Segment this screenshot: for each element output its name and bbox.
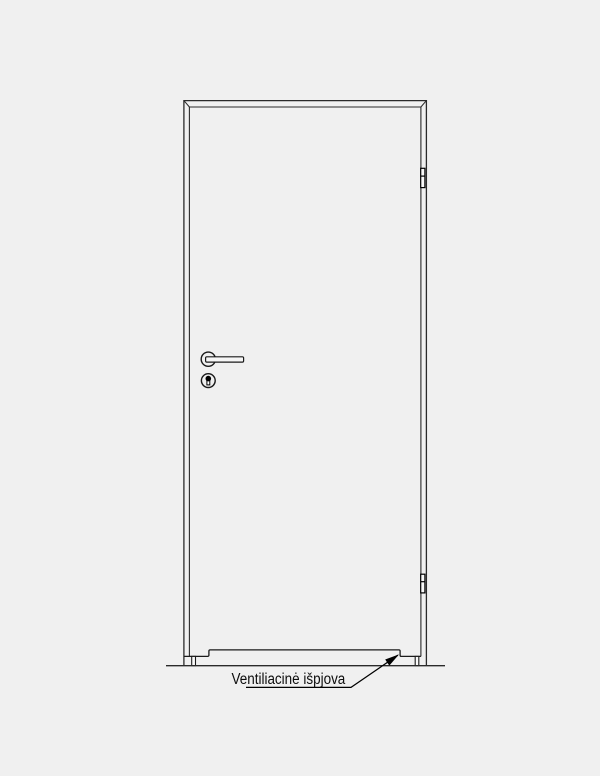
svg-text:Ventiliacinė išpjova: Ventiliacinė išpjova [232, 671, 346, 688]
